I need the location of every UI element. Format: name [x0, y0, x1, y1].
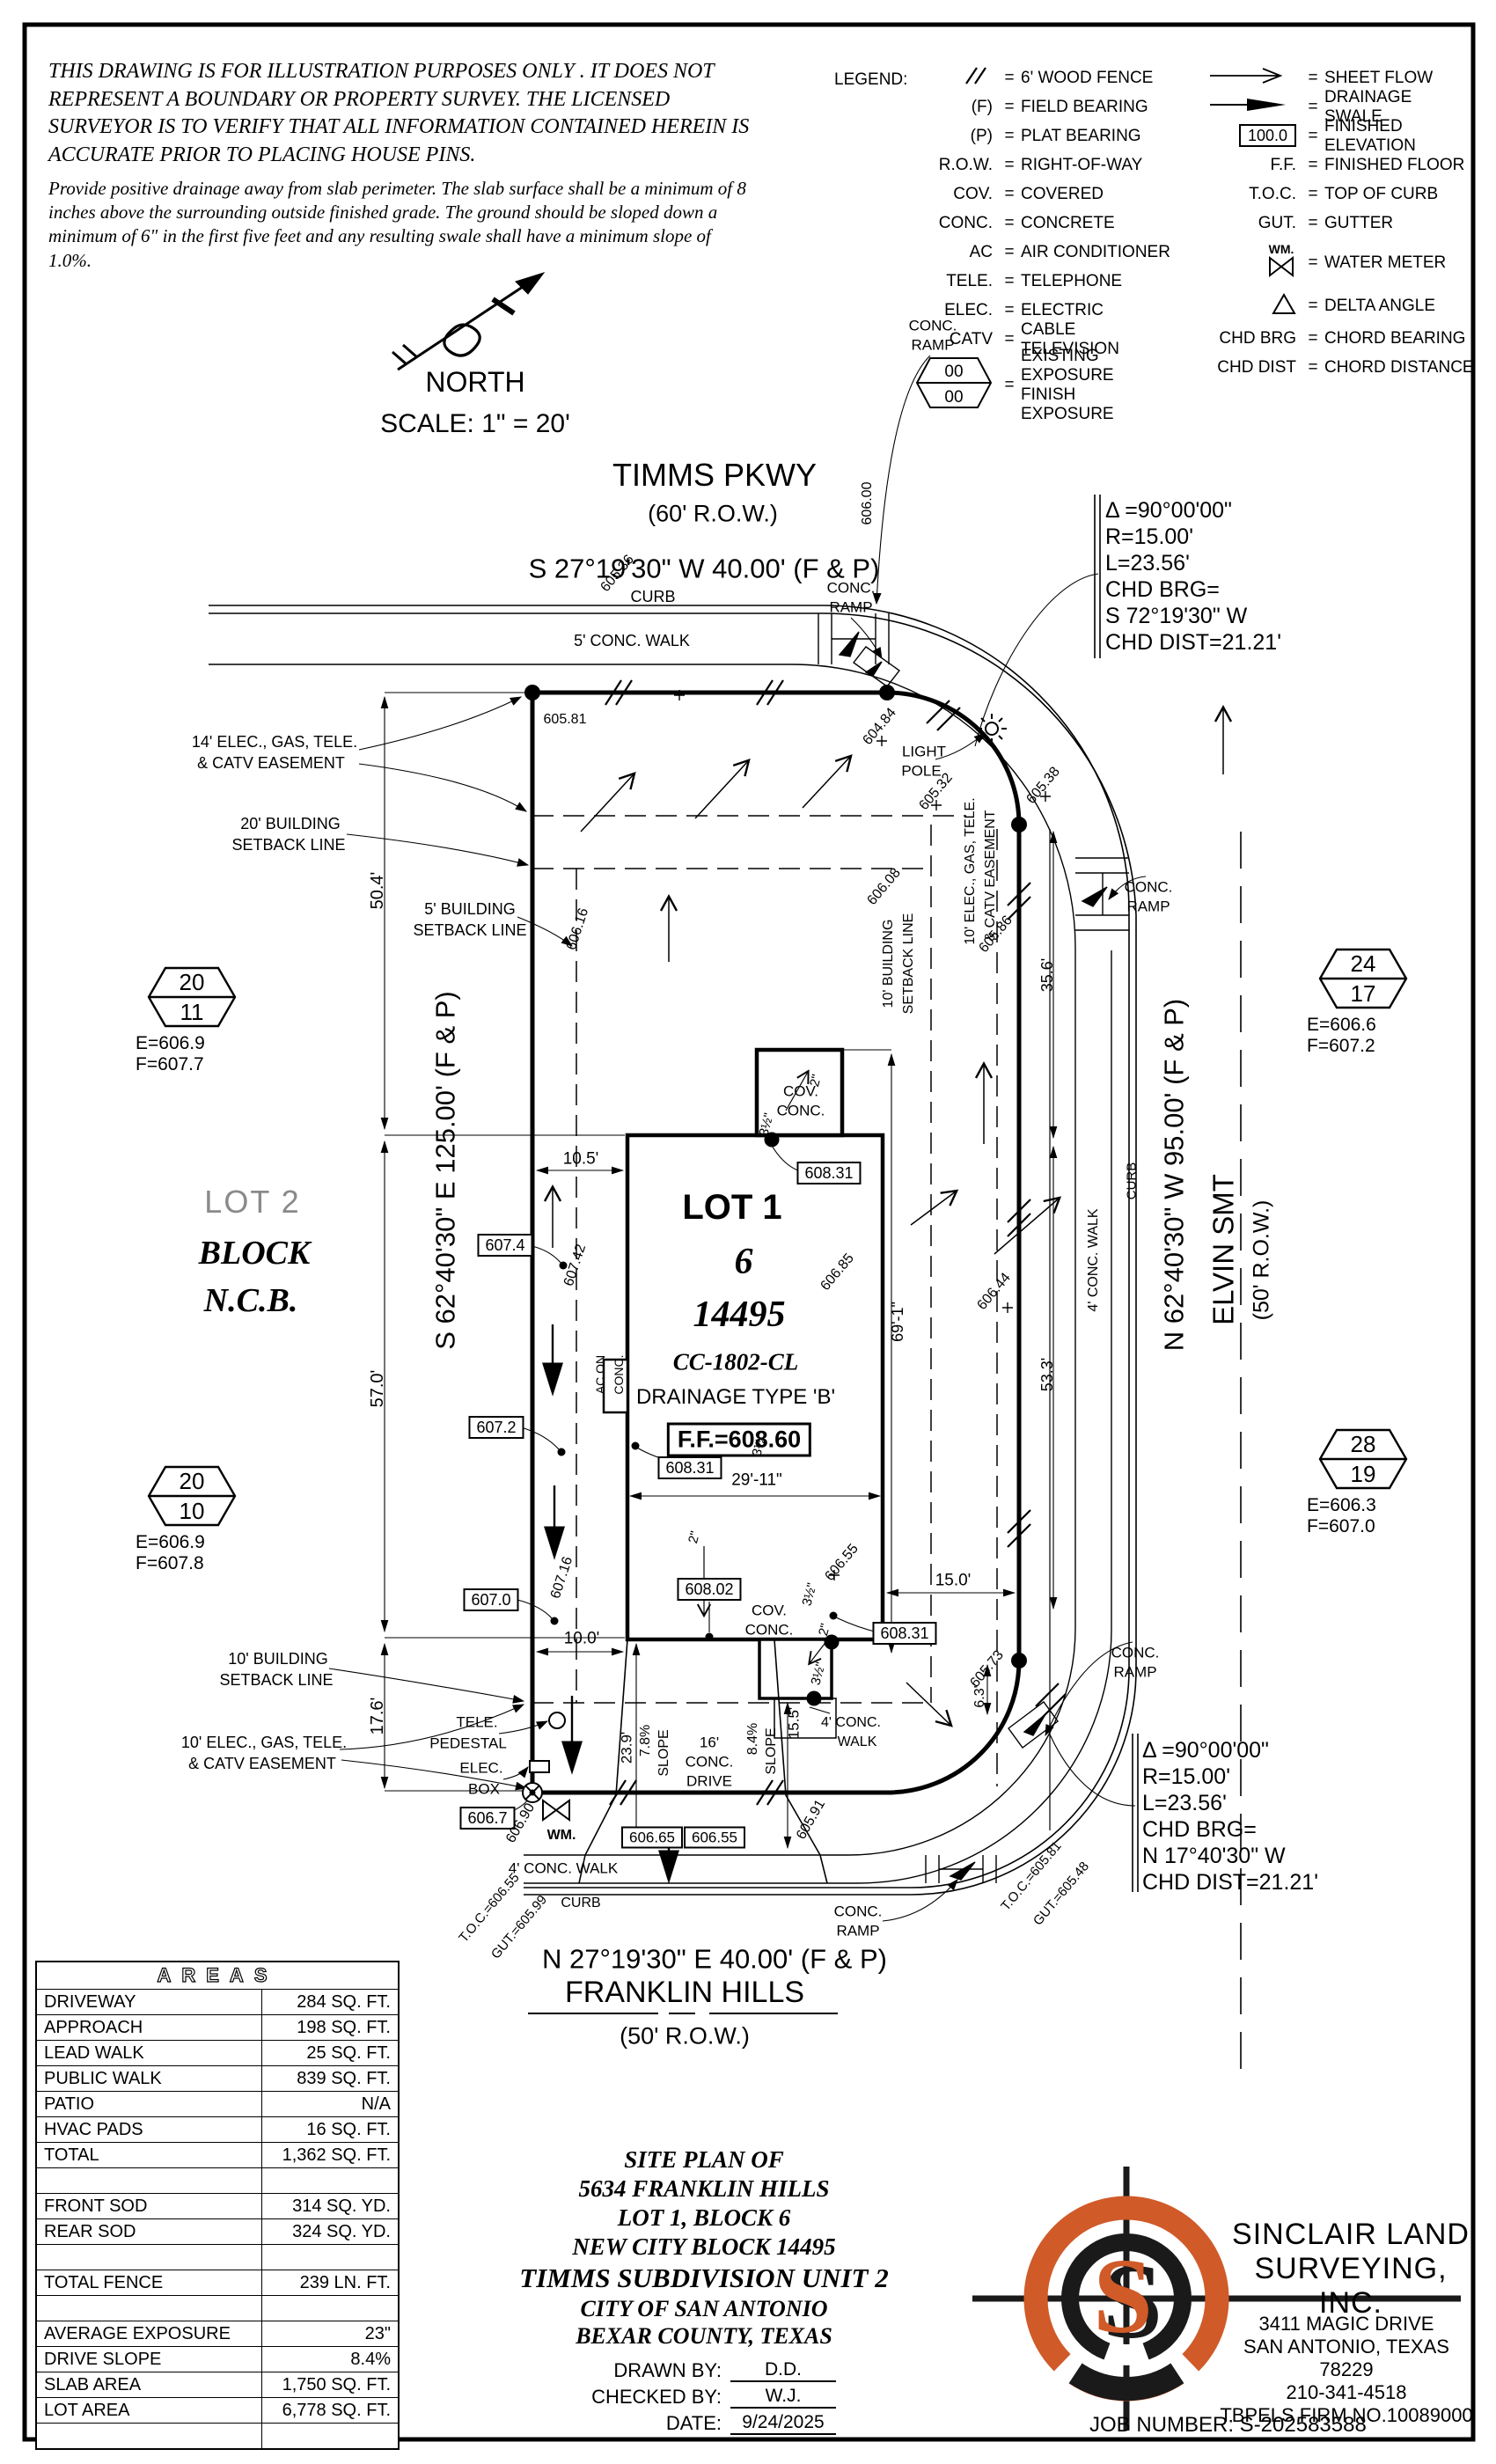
plan-label: LIGHT: [902, 744, 946, 759]
plan-label: 7.8%: [639, 1725, 653, 1756]
legend-label: 6' WOOD FENCE: [1021, 69, 1153, 88]
area-label: [36, 2296, 262, 2321]
equals-sign: =: [1302, 185, 1324, 204]
plan-label: NORTH: [425, 368, 524, 396]
plan-label: TIMMS PKWY: [612, 459, 817, 491]
plan-label: SLOPE: [765, 1727, 779, 1774]
plan-label: FRANKLIN HILLS: [565, 1977, 804, 2007]
plan-label: 50.4': [369, 872, 386, 910]
areas-row: PUBLIC WALK839 SQ. FT.: [36, 2066, 399, 2092]
equals-sign: =: [1302, 329, 1324, 348]
plan-label: 4' CONC.: [821, 1716, 881, 1730]
legend-row: COV.=COVERED: [880, 180, 1170, 209]
area-label: [36, 2424, 262, 2450]
plan-label: LOT 2: [204, 1186, 300, 1218]
plan-label: 14' ELEC., GAS, TELE.: [192, 734, 357, 750]
plan-label: 15.0': [935, 1573, 972, 1589]
svg-text:11: 11: [180, 999, 204, 1025]
firm-address: 3411 MAGIC DRIVESAN ANTONIO, TEXAS 78229…: [1214, 2313, 1478, 2427]
svg-text:20: 20: [180, 1468, 205, 1494]
legend-row: R.O.W.=RIGHT-OF-WAY: [880, 150, 1170, 180]
svg-text:19: 19: [1351, 1461, 1376, 1487]
legend-label: FINISHED FLOOR: [1324, 156, 1464, 175]
plan-label: ELEC.: [459, 1761, 502, 1776]
plan-label: COV.: [752, 1603, 787, 1618]
area-label: DRIVE SLOPE: [36, 2347, 262, 2372]
svg-text:24: 24: [1351, 950, 1376, 977]
plan-label: 16': [700, 1735, 719, 1750]
signoff-row: CHECKED BY:W.J.: [414, 2386, 994, 2409]
plan-label: S 62°40'30" E 125.00' (F & P): [432, 991, 459, 1349]
legend-row: GUT.=GUTTER: [1184, 209, 1474, 238]
plan-label: CONC.: [612, 1354, 625, 1394]
legend-label: TELEPHONE: [1021, 272, 1122, 291]
equals-sign: =: [1302, 214, 1324, 233]
areas-table: AREASDRIVEWAY284 SQ. FT.APPROACH198 SQ. …: [35, 1961, 400, 2450]
plan-label: CONC.: [909, 319, 957, 334]
plan-label: 23.9': [620, 1732, 634, 1764]
legend-symbol: TELE.: [880, 272, 998, 291]
areas-row: [36, 2168, 399, 2194]
plan-label: 10' BUILDING: [228, 1651, 327, 1667]
box100-icon: 100.0: [1184, 127, 1302, 146]
area-label: TOTAL: [36, 2143, 262, 2168]
plan-label: & CATV EASEMENT: [188, 1756, 336, 1771]
plan-label: AC ON: [594, 1355, 606, 1394]
areas-row: APPROACH198 SQ. FT.: [36, 2015, 399, 2041]
plan-label: RAMP: [911, 338, 954, 353]
signoff-value: W.J.: [730, 2386, 836, 2409]
exposure-marker: 2011E=606.9F=607.7: [146, 965, 238, 1075]
legend-label: FINISHED ELEVATION: [1324, 117, 1474, 156]
plan-label: N 27°19'30" E 40.00' (F & P): [542, 1946, 887, 1973]
plan-label: 69'-1": [890, 1302, 906, 1342]
area-value: [262, 2168, 400, 2194]
plan-label: CC-1802-CL: [673, 1351, 799, 1375]
plan-label: 6.3': [973, 1685, 987, 1707]
legend-symbol: F.F.: [1184, 156, 1302, 175]
title-line: 5634 FRANKLIN HILLS: [414, 2174, 994, 2204]
area-label: LEAD WALK: [36, 2041, 262, 2066]
area-value: 25 SQ. FT.: [262, 2041, 400, 2066]
plan-label: 14495: [693, 1296, 786, 1333]
legend-row: TELE.=TELEPHONE: [880, 267, 1170, 296]
area-label: HVAC PADS: [36, 2117, 262, 2143]
plan-label: 5' CONC. WALK: [574, 633, 690, 649]
title-line: CITY OF SAN ANTONIO: [414, 2295, 994, 2323]
legend-symbol: T.O.C.: [1184, 185, 1302, 204]
areas-row: [36, 2296, 399, 2321]
legend-label: WATER METER: [1324, 253, 1446, 273]
plan-label: N 62°40'30" W 95.00' (F & P): [1161, 999, 1188, 1352]
area-label: [36, 2245, 262, 2270]
equals-sign: =: [998, 243, 1021, 262]
area-value: N/A: [262, 2092, 400, 2117]
area-label: FRONT SOD: [36, 2194, 262, 2219]
legend-label: ELECTRIC: [1021, 301, 1104, 320]
firm-job-number: JOB NUMBER: S-202583588: [1089, 2413, 1477, 2438]
legend-label: DELTA ANGLE: [1324, 297, 1435, 316]
plan-label: WM.: [547, 1829, 576, 1843]
legend-symbol: COV.: [880, 185, 998, 204]
areas-row: [36, 2245, 399, 2270]
plan-label: 10' ELEC., GAS, TELE.: [964, 797, 978, 944]
svg-text:20: 20: [180, 969, 205, 995]
plan-label: 607.2: [468, 1416, 524, 1439]
area-label: SLAB AREA: [36, 2372, 262, 2398]
plan-label: CONC.: [827, 581, 876, 596]
area-label: AVERAGE EXPOSURE: [36, 2321, 262, 2347]
legend-label: AIR CONDITIONER: [1021, 243, 1170, 262]
firm-address-line: 210-341-4518: [1214, 2381, 1478, 2404]
svg-text:00: 00: [944, 363, 963, 381]
plan-label: POLE: [901, 764, 941, 779]
equals-sign: =: [998, 185, 1021, 204]
exposure-marker: 2417E=606.6F=607.2: [1317, 947, 1409, 1057]
plan-label: 608.02: [677, 1578, 741, 1601]
curve-data-note: Δ =90°00'00"R=15.00'L=23.56'CHD BRG=N 17…: [1142, 1737, 1318, 1896]
area-label: PATIO: [36, 2092, 262, 2117]
area-label: REAR SOD: [36, 2219, 262, 2245]
legend-row: CHD DIST=CHORD DISTANCE: [1184, 353, 1474, 382]
plan-label: SETBACK LINE: [231, 837, 345, 853]
areas-row: [36, 2424, 399, 2450]
plan-label: RAMP: [829, 600, 872, 615]
legend-row: =DELTA ANGLE: [1184, 289, 1474, 324]
plan-label: 5' BUILDING: [424, 901, 515, 917]
plan-label: 29'-11": [731, 1472, 782, 1489]
plan-label: 10.5': [563, 1151, 599, 1168]
plan-label: (60' R.O.W.): [648, 502, 778, 526]
area-value: 239 LN. FT.: [262, 2270, 400, 2296]
disclaimer-note: THIS DRAWING IS FOR ILLUSTRATION PURPOSE…: [48, 58, 752, 273]
area-value: 6,778 SQ. FT.: [262, 2398, 400, 2424]
plan-label: 606.65: [621, 1827, 683, 1849]
svg-text:28: 28: [1351, 1431, 1376, 1457]
plan-label: DRIVE: [686, 1774, 732, 1789]
area-value: [262, 2296, 400, 2321]
plan-label: RAMP: [1126, 899, 1170, 914]
plan-label: CURB: [630, 589, 675, 605]
plan-label: F.F.=608.60: [667, 1423, 811, 1457]
areas-row: AVERAGE EXPOSURE23": [36, 2321, 399, 2347]
signoff-label: CHECKED BY:: [572, 2386, 730, 2409]
plan-label: 15.5': [787, 1707, 802, 1739]
equals-sign: =: [998, 301, 1021, 320]
bowtie-icon: WM.: [1184, 243, 1302, 283]
areas-row: LOT AREA6,778 SQ. FT.: [36, 2398, 399, 2424]
equals-sign: =: [998, 127, 1021, 146]
signoff-row: DATE:9/24/2025: [414, 2412, 994, 2435]
legend-left-column: =6' WOOD FENCE(F)=FIELD BEARING(P)=PLAT …: [880, 63, 1170, 417]
legend-label: RIGHT-OF-WAY: [1021, 156, 1142, 175]
legend-label: FIELD BEARING: [1021, 98, 1148, 117]
plan-label: 35.6': [1039, 958, 1055, 992]
legend-label: EXISTING EXPOSUREFINISH EXPOSURE: [1021, 347, 1170, 423]
area-value: [262, 2245, 400, 2270]
hex00-icon: 0000: [880, 356, 998, 414]
area-label: DRIVEWAY: [36, 1990, 262, 2015]
area-value: 314 SQ. YD.: [262, 2194, 400, 2219]
areas-row: HVAC PADS16 SQ. FT.: [36, 2117, 399, 2143]
signoff-block: DRAWN BY:D.D.CHECKED BY:W.J.DATE:9/24/20…: [414, 2359, 994, 2435]
signoff-value: D.D.: [730, 2359, 836, 2382]
plan-label: 608.31: [657, 1456, 722, 1479]
legend-label: CHORD DISTANCE: [1324, 358, 1474, 378]
legend-label: SHEET FLOW: [1324, 69, 1433, 88]
firm-name-line2: SURVEYING, INC.: [1228, 2252, 1474, 2321]
plan-label: 606.00: [861, 482, 875, 525]
site-plan-page: S S THIS DRAWING IS FOR ILLUSTRATION PUR…: [0, 0, 1496, 2464]
plan-label: & CATV EASEMENT: [197, 755, 345, 771]
plan-label: SETBACK LINE: [413, 922, 526, 938]
plan-label: 10' ELEC., GAS, TELE.: [181, 1734, 347, 1750]
plan-label: 607.4: [477, 1234, 532, 1257]
plan-label: LOT 1: [682, 1190, 781, 1225]
legend-row: AC=AIR CONDITIONER: [880, 238, 1170, 267]
equals-sign: =: [998, 330, 1021, 349]
plan-label: CONC.: [834, 1904, 883, 1919]
firm-name-line1: SINCLAIR LAND: [1228, 2218, 1474, 2252]
disclaimer-paragraph-1: THIS DRAWING IS FOR ILLUSTRATION PURPOSE…: [48, 58, 752, 170]
plan-label: PEDESTAL: [429, 1736, 507, 1751]
equals-sign: =: [998, 272, 1021, 291]
plan-label: CURB: [561, 1896, 600, 1910]
firm-address-line: 3411 MAGIC DRIVE: [1214, 2313, 1478, 2336]
plan-label: (50' R.O.W.): [1251, 1200, 1273, 1321]
firm-address-line: SAN ANTONIO, TEXAS 78229: [1214, 2336, 1478, 2381]
title-line: NEW CITY BLOCK 14495: [414, 2233, 994, 2262]
equals-sign: =: [1302, 127, 1324, 146]
title-block: SITE PLAN OF5634 FRANKLIN HILLSLOT 1, BL…: [414, 2145, 994, 2435]
signoff-row: DRAWN BY:D.D.: [414, 2359, 994, 2382]
area-value: 839 SQ. FT.: [262, 2066, 400, 2092]
equals-sign: =: [998, 98, 1021, 117]
equals-sign: =: [1302, 297, 1324, 316]
equals-sign: =: [1302, 98, 1324, 117]
equals-sign: =: [998, 214, 1021, 233]
plan-label: RAMP: [836, 1924, 879, 1939]
areas-row: PATION/A: [36, 2092, 399, 2117]
legend-symbol: CONC.: [880, 214, 998, 233]
plan-label: 4' CONC. WALK: [509, 1861, 618, 1876]
plan-label: 10.0': [564, 1631, 600, 1647]
equals-sign: =: [998, 156, 1021, 175]
plan-label: 20' BUILDING: [240, 816, 340, 832]
legend-row: CHD BRG=CHORD BEARING: [1184, 324, 1474, 353]
equals-sign: =: [1302, 69, 1324, 88]
legend-label: CONCRETE: [1021, 214, 1115, 233]
area-value: 16 SQ. FT.: [262, 2117, 400, 2143]
legend-label: GUTTER: [1324, 214, 1393, 233]
arrow-open-icon: [1184, 67, 1302, 90]
svg-text:00: 00: [944, 388, 963, 407]
legend-row: 100.0=FINISHED ELEVATION: [1184, 121, 1474, 150]
plan-label: 4' CONC. WALK: [1087, 1208, 1101, 1311]
plan-label: 8.4%: [746, 1723, 760, 1755]
svg-text:S: S: [1093, 2237, 1153, 2356]
plan-label: BOX: [468, 1782, 500, 1797]
area-label: PUBLIC WALK: [36, 2066, 262, 2092]
plan-label: CONC.: [1111, 1646, 1160, 1661]
plan-label: CONC.: [777, 1104, 825, 1118]
plan-label: TELE.: [456, 1715, 497, 1730]
areas-row: DRIVEWAY284 SQ. FT.: [36, 1990, 399, 2015]
legend-row: (P)=PLAT BEARING: [880, 121, 1170, 150]
plan-label: CONC.: [686, 1755, 734, 1770]
plan-label: RAMP: [1113, 1665, 1156, 1680]
equals-sign: =: [998, 376, 1021, 395]
legend-label: COVERED: [1021, 185, 1104, 204]
plan-label: CONC.: [1125, 880, 1173, 895]
legend-label: PLAT BEARING: [1021, 127, 1141, 146]
areas-row: LEAD WALK25 SQ. FT.: [36, 2041, 399, 2066]
area-value: 1,750 SQ. FT.: [262, 2372, 400, 2398]
title-line: TIMMS SUBDIVISION UNIT 2: [414, 2262, 994, 2295]
plan-label: S 27°19'30" W 40.00' (F & P): [529, 555, 880, 583]
title-line: SITE PLAN OF: [414, 2145, 994, 2174]
areas-row: TOTAL FENCE239 LN. FT.: [36, 2270, 399, 2296]
plan-label: SLOPE: [657, 1729, 671, 1776]
areas-row: REAR SOD324 SQ. YD.: [36, 2219, 399, 2245]
plan-label: N.C.B.: [204, 1284, 298, 1317]
legend-row: CONC.=CONCRETE: [880, 209, 1170, 238]
plan-label: ELVIN SMT: [1209, 1174, 1238, 1325]
area-value: 8.4%: [262, 2347, 400, 2372]
plan-label: 53.3': [1039, 1358, 1055, 1391]
plan-label: 608.31: [872, 1622, 936, 1645]
legend-row: 0000=EXISTING EXPOSUREFINISH EXPOSURE: [880, 354, 1170, 417]
area-value: 284 SQ. FT.: [262, 1990, 400, 2015]
plan-label: WALK: [838, 1735, 877, 1749]
area-value: 198 SQ. FT.: [262, 2015, 400, 2041]
plan-label: SETBACK LINE: [902, 913, 916, 1015]
plan-label: 6: [735, 1243, 753, 1280]
legend-symbol: CHD DIST: [1184, 358, 1302, 378]
equals-sign: =: [1302, 358, 1324, 378]
title-line: LOT 1, BLOCK 6: [414, 2204, 994, 2233]
plan-label: CURB: [1126, 1162, 1139, 1200]
plan-label: 608.31: [796, 1162, 861, 1184]
plan-label: (50' R.O.W.): [620, 2025, 750, 2049]
legend-row: WM.=WATER METER: [1184, 238, 1474, 289]
legend-symbol: (F): [880, 98, 998, 117]
area-label: APPROACH: [36, 2015, 262, 2041]
legend-right-column: =SHEET FLOW=DRAINAGE SWALE100.0=FINISHED…: [1184, 63, 1474, 382]
signoff-value: 9/24/2025: [730, 2412, 836, 2435]
plan-label: 606.55: [684, 1827, 745, 1849]
plan-label: 57.0': [369, 1370, 386, 1408]
area-value: 1,362 SQ. FT.: [262, 2143, 400, 2168]
areas-title: AREAS: [36, 1962, 399, 1990]
equals-sign: =: [1302, 253, 1324, 273]
svg-text:10: 10: [180, 1498, 205, 1524]
areas-row: SLAB AREA1,750 SQ. FT.: [36, 2372, 399, 2398]
area-label: LOT AREA: [36, 2398, 262, 2424]
legend-label: CHORD BEARING: [1324, 329, 1465, 348]
plan-label: CONC.: [745, 1623, 794, 1638]
signoff-label: DRAWN BY:: [572, 2359, 730, 2382]
legend-symbol: GUT.: [1184, 214, 1302, 233]
title-line: BEXAR COUNTY, TEXAS: [414, 2322, 994, 2350]
legend-symbol: CHD BRG: [1184, 329, 1302, 348]
plan-label: DRAINAGE TYPE 'B': [636, 1387, 835, 1408]
plan-label: 606.7: [459, 1807, 515, 1830]
legend-symbol: (P): [880, 127, 998, 146]
plan-label: 607.0: [463, 1588, 518, 1611]
legend-symbol: AC: [880, 243, 998, 262]
legend-row: =6' WOOD FENCE: [880, 63, 1170, 92]
plan-label: BLOCK: [199, 1236, 311, 1270]
legend-symbol: R.O.W.: [880, 156, 998, 175]
equals-sign: =: [1302, 156, 1324, 175]
legend-row: T.O.C.=TOP OF CURB: [1184, 180, 1474, 209]
svg-text:17: 17: [1351, 980, 1376, 1007]
area-label: [36, 2168, 262, 2194]
area-value: [262, 2424, 400, 2450]
legend-row: (F)=FIELD BEARING: [880, 92, 1170, 121]
plan-label: SETBACK LINE: [219, 1672, 333, 1688]
plan-label: SCALE: 1" = 20': [380, 411, 570, 437]
areas-row: TOTAL1,362 SQ. FT.: [36, 2143, 399, 2168]
curve-data-note: Δ =90°00'00"R=15.00'L=23.56'CHD BRG=S 72…: [1105, 497, 1281, 656]
plan-label: 605.81: [544, 713, 587, 727]
plan-label: 17.6': [369, 1698, 386, 1735]
exposure-marker: 2010E=606.9F=607.8: [146, 1464, 238, 1574]
legend-row: F.F.=FINISHED FLOOR: [1184, 150, 1474, 180]
areas-row: FRONT SOD314 SQ. YD.: [36, 2194, 399, 2219]
area-label: TOTAL FENCE: [36, 2270, 262, 2296]
plan-label: 10' BUILDING: [882, 920, 896, 1008]
signoff-label: DATE:: [572, 2412, 730, 2435]
areas-row: DRIVE SLOPE8.4%: [36, 2347, 399, 2372]
area-value: 324 SQ. YD.: [262, 2219, 400, 2245]
disclaimer-paragraph-2: Provide positive drainage away from slab…: [48, 177, 752, 273]
slashes-icon: [880, 64, 998, 92]
triangle-icon: [1184, 291, 1302, 321]
arrow-solid-icon: [1184, 96, 1302, 119]
exposure-marker: 2819E=606.3F=607.0: [1317, 1427, 1409, 1537]
legend-label: TOP OF CURB: [1324, 185, 1438, 204]
equals-sign: =: [998, 69, 1021, 88]
area-value: 23": [262, 2321, 400, 2347]
firm-name: SINCLAIR LAND SURVEYING, INC.: [1228, 2218, 1474, 2321]
